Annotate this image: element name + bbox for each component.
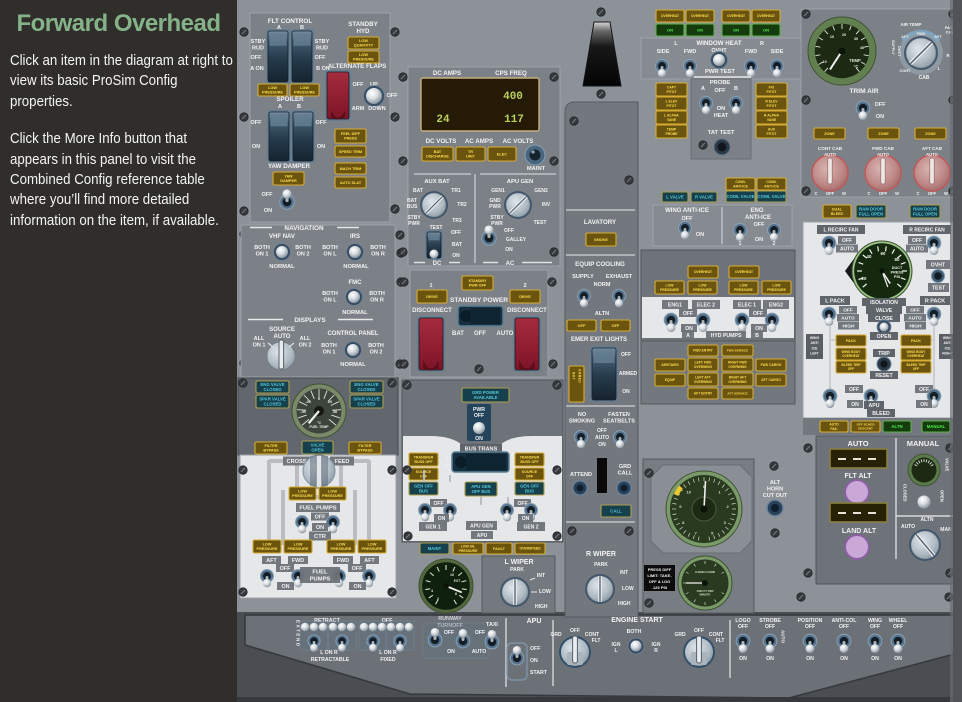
svg-text:OFF: OFF bbox=[738, 624, 748, 630]
svg-text:DUCT: DUCT bbox=[892, 266, 903, 270]
svg-text:SMOKE: SMOKE bbox=[594, 238, 608, 242]
svg-text:ON: ON bbox=[697, 27, 703, 32]
svg-text:PRESSURE: PRESSURE bbox=[693, 288, 712, 292]
svg-text:BYPASS: BYPASS bbox=[357, 449, 373, 453]
svg-text:FWD: FWD bbox=[917, 32, 926, 36]
svg-text:ON: ON bbox=[806, 656, 814, 662]
svg-text:ON: ON bbox=[876, 114, 884, 120]
svg-text:NAVIGATION: NAVIGATION bbox=[284, 225, 324, 232]
svg-text:CROSS: CROSS bbox=[287, 459, 307, 465]
svg-text:OFF: OFF bbox=[387, 93, 399, 99]
svg-text:VALVE: VALVE bbox=[876, 308, 893, 314]
svg-text:PUMPS: PUMPS bbox=[310, 577, 331, 583]
svg-text:A: A bbox=[701, 86, 705, 92]
svg-text:BLEED: BLEED bbox=[872, 411, 890, 417]
svg-text:FUEL PUMPS: FUEL PUMPS bbox=[299, 506, 336, 512]
svg-text:GRD: GRD bbox=[619, 464, 631, 470]
svg-text:L WIPER: L WIPER bbox=[504, 559, 533, 566]
svg-text:CALL: CALL bbox=[618, 471, 633, 477]
svg-text:RUNWAY: RUNWAY bbox=[438, 616, 462, 622]
svg-text:SOURCE: SOURCE bbox=[522, 470, 538, 474]
svg-text:OFF: OFF bbox=[315, 514, 326, 520]
svg-text:AFT: AFT bbox=[364, 558, 375, 564]
svg-text:40: 40 bbox=[333, 409, 338, 414]
svg-text:ON: ON bbox=[317, 144, 325, 150]
svg-text:ON: ON bbox=[667, 27, 673, 32]
svg-text:-10: -10 bbox=[821, 60, 827, 64]
svg-text:ALL: ALL bbox=[300, 336, 311, 342]
svg-text:LEFT: LEFT bbox=[810, 352, 819, 356]
svg-text:DISCHARGE: DISCHARGE bbox=[426, 155, 449, 159]
svg-text:PARK: PARK bbox=[594, 562, 608, 568]
svg-text:PRESSURE: PRESSURE bbox=[322, 494, 343, 498]
svg-text:AUTO: AUTO bbox=[901, 524, 915, 530]
svg-text:BOTH: BOTH bbox=[368, 343, 384, 349]
svg-text:SUPPLY: SUPPLY bbox=[572, 274, 594, 280]
svg-text:ALTN: ALTN bbox=[891, 424, 902, 429]
svg-text:TRANSFER: TRANSFER bbox=[414, 456, 434, 460]
svg-text:GEN2: GEN2 bbox=[534, 188, 548, 194]
svg-text:HORN: HORN bbox=[767, 487, 783, 493]
svg-text:ON: ON bbox=[475, 436, 483, 442]
svg-text:VALVE: VALVE bbox=[945, 458, 950, 472]
svg-text:AUTO: AUTO bbox=[497, 331, 514, 337]
svg-text:APU: APU bbox=[869, 403, 880, 409]
svg-text:ON: ON bbox=[685, 326, 693, 332]
svg-text:VHF NAV: VHF NAV bbox=[269, 234, 295, 240]
svg-text:HIGH: HIGH bbox=[843, 323, 856, 329]
svg-text:ON 1: ON 1 bbox=[256, 252, 269, 258]
svg-text:AC VOLTS: AC VOLTS bbox=[503, 138, 534, 145]
svg-text:OFF: OFF bbox=[451, 230, 461, 236]
svg-text:ISOLATION: ISOLATION bbox=[870, 300, 898, 306]
svg-text:NORM: NORM bbox=[594, 282, 611, 288]
svg-text:CONTROL PANEL: CONTROL PANEL bbox=[327, 331, 378, 337]
svg-text:ON: ON bbox=[871, 656, 879, 662]
svg-text:LAND ALT: LAND ALT bbox=[842, 528, 877, 535]
svg-text:LOW: LOW bbox=[263, 543, 272, 547]
svg-text:PWR: PWR bbox=[491, 221, 503, 227]
svg-text:EXHAUST: EXHAUST bbox=[606, 274, 633, 280]
svg-text:AUX BAT: AUX BAT bbox=[424, 179, 450, 185]
svg-text:STANDBY: STANDBY bbox=[468, 279, 487, 283]
svg-text:OFF: OFF bbox=[848, 367, 854, 371]
svg-text:PRESSURE: PRESSURE bbox=[660, 288, 679, 292]
svg-text:OFF: OFF bbox=[913, 367, 919, 371]
svg-text:ON: ON bbox=[281, 584, 289, 590]
svg-text:C: C bbox=[814, 191, 817, 196]
svg-text:-20: -20 bbox=[305, 399, 312, 404]
svg-text:OFF: OFF bbox=[805, 624, 815, 630]
svg-text:PRESSURE: PRESSURE bbox=[767, 288, 786, 292]
svg-text:PRESS: PRESS bbox=[344, 137, 357, 141]
svg-text:R: R bbox=[654, 648, 658, 654]
svg-text:AFT CARGO: AFT CARGO bbox=[761, 378, 781, 382]
svg-text:FULL OPEN: FULL OPEN bbox=[859, 212, 883, 217]
svg-text:ON: ON bbox=[530, 658, 538, 664]
svg-text:AFT: AFT bbox=[901, 35, 909, 39]
svg-text:O: O bbox=[512, 465, 515, 469]
svg-text:OFF: OFF bbox=[475, 630, 485, 636]
svg-text:B: B bbox=[300, 25, 304, 31]
svg-text:FLT CONTROL: FLT CONTROL bbox=[268, 18, 313, 25]
svg-text:MINUTE: MINUTE bbox=[700, 592, 711, 596]
svg-text:OFF: OFF bbox=[474, 331, 486, 337]
svg-text:ON: ON bbox=[264, 208, 272, 214]
svg-text:LOW: LOW bbox=[359, 39, 368, 43]
svg-text:GRD: GRD bbox=[550, 632, 562, 638]
svg-text:R VALVE: R VALVE bbox=[695, 195, 713, 200]
svg-text:DAMPER: DAMPER bbox=[280, 179, 297, 183]
svg-text:CONT CAB: CONT CAB bbox=[818, 146, 843, 151]
svg-text:RUD: RUD bbox=[252, 46, 264, 52]
svg-text:BUS: BUS bbox=[419, 489, 428, 494]
svg-text:400: 400 bbox=[503, 91, 523, 103]
svg-text:FEED: FEED bbox=[335, 459, 350, 465]
svg-text:10: 10 bbox=[686, 490, 691, 495]
svg-text:CAB: CAB bbox=[919, 75, 930, 81]
svg-text:PRESSURE: PRESSURE bbox=[362, 547, 383, 551]
svg-text:FWD: FWD bbox=[745, 49, 758, 55]
svg-text:OPEN: OPEN bbox=[940, 490, 945, 502]
svg-text:TAXI: TAXI bbox=[486, 622, 498, 628]
svg-text:LOW: LOW bbox=[294, 543, 303, 547]
svg-text:WINDOW HEAT: WINDOW HEAT bbox=[696, 40, 741, 47]
svg-text:AFT: AFT bbox=[934, 35, 942, 39]
svg-text:COWL VALVE: COWL VALVE bbox=[758, 194, 786, 199]
svg-text:20: 20 bbox=[862, 276, 867, 281]
svg-text:OFF: OFF bbox=[754, 222, 766, 228]
svg-text:ANTI-ICE: ANTI-ICE bbox=[733, 184, 748, 188]
svg-text:OFF: OFF bbox=[682, 216, 694, 222]
svg-text:CLOSED: CLOSED bbox=[358, 402, 376, 407]
svg-text:L ON R: L ON R bbox=[379, 650, 397, 656]
svg-text:2: 2 bbox=[437, 597, 439, 601]
svg-text:ANTI: ANTI bbox=[811, 341, 819, 345]
svg-text:BLEED: BLEED bbox=[831, 212, 844, 216]
svg-text:APU GEN: APU GEN bbox=[470, 523, 493, 529]
svg-text:YAW DAMPER: YAW DAMPER bbox=[268, 163, 311, 170]
svg-text:OVERWING: OVERWING bbox=[694, 365, 713, 369]
svg-text:OVERWING: OVERWING bbox=[728, 365, 747, 369]
svg-text:°C: °C bbox=[854, 64, 859, 69]
svg-text:LOW: LOW bbox=[328, 490, 337, 494]
svg-text:TR2: TR2 bbox=[457, 202, 467, 208]
svg-text:W: W bbox=[842, 191, 846, 196]
svg-text:OFF: OFF bbox=[352, 566, 363, 572]
svg-text:ON: ON bbox=[522, 516, 530, 522]
svg-text:PRESSURE: PRESSURE bbox=[288, 547, 309, 551]
svg-text:OFF & LDG: OFF & LDG bbox=[649, 579, 671, 584]
svg-text:MANUAL: MANUAL bbox=[927, 424, 946, 429]
svg-text:CONT: CONT bbox=[900, 69, 911, 73]
svg-text:AUTO: AUTO bbox=[781, 630, 786, 643]
svg-text:OFF: OFF bbox=[842, 238, 852, 244]
svg-text:WING: WING bbox=[810, 336, 820, 340]
svg-text:OVERHEAT: OVERHEAT bbox=[735, 270, 753, 274]
svg-text:DRIVE: DRIVE bbox=[426, 295, 438, 299]
svg-text:OFF: OFF bbox=[251, 55, 263, 61]
svg-text:ENGINE START: ENGINE START bbox=[611, 617, 663, 624]
svg-text:FWD: FWD bbox=[684, 49, 697, 55]
svg-text:OFF: OFF bbox=[753, 311, 763, 317]
svg-text:PRESSURE: PRESSURE bbox=[353, 58, 374, 62]
svg-text:PRESSURE: PRESSURE bbox=[292, 494, 313, 498]
svg-text:ON: ON bbox=[316, 525, 324, 531]
svg-text:8: 8 bbox=[455, 592, 457, 596]
svg-text:W: W bbox=[944, 191, 948, 196]
svg-text:ON: ON bbox=[452, 253, 460, 259]
svg-text:BUS: BUS bbox=[407, 204, 418, 210]
svg-text:BAT: BAT bbox=[413, 188, 423, 194]
svg-text:FMC: FMC bbox=[349, 280, 363, 286]
svg-text:PRESSURE: PRESSURE bbox=[294, 91, 315, 95]
svg-text:BAT: BAT bbox=[452, 331, 464, 337]
svg-text:ON L: ON L bbox=[323, 298, 337, 304]
svg-text:RESET: RESET bbox=[875, 373, 893, 379]
svg-text:PRESSURE: PRESSURE bbox=[257, 547, 278, 551]
svg-text:HIGH: HIGH bbox=[535, 604, 548, 610]
svg-text:OVERHEAT: OVERHEAT bbox=[842, 354, 860, 358]
svg-text:TRIP: TRIP bbox=[878, 351, 890, 357]
svg-text:CLOSED: CLOSED bbox=[358, 387, 376, 392]
svg-text:L ON R: L ON R bbox=[320, 650, 338, 656]
svg-text:30: 30 bbox=[854, 37, 858, 41]
svg-text:DRIVE: DRIVE bbox=[519, 295, 531, 299]
svg-text:MAINT: MAINT bbox=[527, 166, 546, 172]
svg-text:TEST: TEST bbox=[534, 220, 547, 226]
svg-text:LOW: LOW bbox=[298, 490, 307, 494]
svg-text:ON 2: ON 2 bbox=[299, 343, 312, 349]
svg-text:AUTO: AUTO bbox=[908, 315, 922, 321]
svg-text:AFT ENTRY: AFT ENTRY bbox=[694, 392, 713, 396]
svg-text:PROBE: PROBE bbox=[665, 132, 678, 136]
svg-text:OFF: OFF bbox=[578, 323, 587, 328]
svg-text:PITOT: PITOT bbox=[767, 104, 778, 108]
svg-text:BOTH: BOTH bbox=[322, 245, 338, 251]
svg-text:FUEL: FUEL bbox=[312, 570, 328, 576]
svg-text:OFF: OFF bbox=[910, 307, 920, 313]
svg-text:117: 117 bbox=[504, 114, 524, 126]
svg-text:CPS FREQ: CPS FREQ bbox=[495, 70, 527, 77]
svg-text:OVERHEAT: OVERHEAT bbox=[727, 14, 745, 18]
svg-text:BOTH: BOTH bbox=[627, 629, 642, 635]
svg-text:AC AMPS: AC AMPS bbox=[465, 138, 493, 145]
svg-text:OFF: OFF bbox=[444, 630, 454, 636]
svg-text:SIDE: SIDE bbox=[657, 49, 670, 55]
svg-text:ON: ON bbox=[739, 656, 747, 662]
svg-text:CLOSED: CLOSED bbox=[264, 402, 282, 407]
svg-text:OFF: OFF bbox=[683, 311, 693, 317]
svg-text:PWR TEST: PWR TEST bbox=[705, 69, 735, 75]
svg-text:AIRSTAIRS: AIRSTAIRS bbox=[661, 363, 679, 367]
svg-text:CABIN CLIMB: CABIN CLIMB bbox=[695, 570, 716, 574]
svg-text:OFF: OFF bbox=[919, 387, 929, 393]
svg-text:R: R bbox=[760, 41, 764, 47]
svg-text:2: 2 bbox=[773, 241, 776, 247]
svg-text:DISCONNECT: DISCONNECT bbox=[412, 308, 452, 314]
svg-text:FILTER: FILTER bbox=[358, 444, 371, 448]
svg-text:ON: ON bbox=[755, 326, 763, 332]
svg-text:PRESSURE: PRESSURE bbox=[734, 288, 753, 292]
svg-text:40: 40 bbox=[860, 46, 864, 50]
svg-text:FEEL DIFF: FEEL DIFF bbox=[341, 132, 361, 136]
svg-text:SEATBELTS: SEATBELTS bbox=[603, 419, 635, 425]
svg-text:BAT: BAT bbox=[434, 150, 442, 154]
svg-text:A ON: A ON bbox=[250, 66, 264, 72]
svg-text:OVERHEAT: OVERHEAT bbox=[694, 270, 712, 274]
svg-text:OFF: OFF bbox=[526, 475, 534, 479]
svg-text:LOW: LOW bbox=[368, 543, 377, 547]
svg-text:OFF: OFF bbox=[893, 624, 903, 630]
svg-text:TR3: TR3 bbox=[452, 218, 462, 224]
svg-text:L VALVE: L VALVE bbox=[666, 195, 684, 200]
svg-text:TEST: TEST bbox=[932, 285, 946, 291]
svg-text:FWD SERVICE: FWD SERVICE bbox=[727, 349, 748, 353]
svg-text:LOW: LOW bbox=[300, 86, 309, 90]
svg-text:OFF: OFF bbox=[843, 307, 853, 313]
svg-text:OFF: OFF bbox=[316, 120, 328, 126]
svg-text:PSI: PSI bbox=[894, 275, 900, 279]
svg-text:SPEED TRIM: SPEED TRIM bbox=[339, 150, 362, 154]
svg-text:PWR: PWR bbox=[489, 204, 501, 210]
svg-text:APU GEN: APU GEN bbox=[507, 179, 533, 185]
svg-text:OFF BUS: OFF BUS bbox=[472, 489, 491, 494]
svg-text:DUAL: DUAL bbox=[832, 208, 843, 212]
svg-text:VANE: VANE bbox=[667, 118, 677, 122]
svg-text:APU: APU bbox=[477, 533, 488, 539]
svg-text:OFF: OFF bbox=[715, 88, 727, 94]
svg-text:PRESS DIFF: PRESS DIFF bbox=[648, 567, 672, 572]
svg-text:ON 1: ON 1 bbox=[253, 343, 266, 349]
svg-text:OVERWING: OVERWING bbox=[728, 380, 747, 384]
svg-text:ALTN: ALTN bbox=[921, 517, 934, 523]
svg-text:OVERWING: OVERWING bbox=[694, 380, 713, 384]
svg-text:ZONE: ZONE bbox=[878, 132, 889, 136]
svg-text:AUTO: AUTO bbox=[472, 649, 487, 655]
svg-text:2: 2 bbox=[523, 283, 526, 289]
svg-text:OFF: OFF bbox=[570, 628, 580, 634]
svg-text:DESCENT: DESCENT bbox=[858, 427, 873, 431]
svg-text:ELEC 2: ELEC 2 bbox=[697, 302, 715, 308]
svg-text:AFT CAB: AFT CAB bbox=[922, 146, 943, 151]
svg-text:OFF: OFF bbox=[879, 191, 888, 196]
svg-text:PRESSURE: PRESSURE bbox=[331, 547, 352, 551]
svg-text:OFF: OFF bbox=[474, 413, 484, 419]
svg-text:ENG1: ENG1 bbox=[668, 302, 682, 308]
svg-text:PARK: PARK bbox=[510, 567, 524, 573]
svg-text:FWD ENTRY: FWD ENTRY bbox=[693, 349, 713, 353]
svg-text:ON 2: ON 2 bbox=[370, 350, 383, 356]
svg-text:L: L bbox=[938, 66, 941, 71]
svg-text:R RECIRC FAN: R RECIRC FAN bbox=[909, 227, 945, 233]
svg-text:OVERSPEED: OVERSPEED bbox=[519, 547, 541, 551]
svg-text:PITOT: PITOT bbox=[667, 90, 678, 94]
svg-text:40: 40 bbox=[867, 254, 872, 259]
svg-text:GRD: GRD bbox=[674, 632, 686, 638]
svg-text:TRIM AIR: TRIM AIR bbox=[849, 88, 878, 95]
svg-text:EGT: EGT bbox=[454, 579, 461, 583]
svg-text:INV: INV bbox=[542, 202, 551, 208]
svg-text:PACK: PACK bbox=[846, 339, 856, 343]
svg-text:ON: ON bbox=[766, 656, 774, 662]
svg-text:ON: ON bbox=[920, 402, 928, 408]
svg-text:FAULT: FAULT bbox=[493, 547, 506, 551]
svg-text:ENG2: ENG2 bbox=[769, 302, 783, 308]
svg-text:OFF: OFF bbox=[839, 624, 849, 630]
svg-text:BOTH: BOTH bbox=[295, 245, 311, 251]
svg-text:LAVATORY: LAVATORY bbox=[584, 219, 617, 226]
svg-text:HIGH: HIGH bbox=[910, 323, 923, 329]
svg-text:COWL VALVE: COWL VALVE bbox=[727, 194, 755, 199]
svg-text:AFT: AFT bbox=[266, 558, 277, 564]
svg-text:HIGH: HIGH bbox=[618, 601, 631, 607]
svg-text:QUANTITY: QUANTITY bbox=[354, 44, 374, 48]
svg-text:ON: ON bbox=[755, 237, 763, 243]
svg-text:LOW: LOW bbox=[337, 543, 346, 547]
svg-text:L PACK: L PACK bbox=[825, 298, 845, 304]
svg-text:ON 1: ON 1 bbox=[323, 350, 336, 356]
svg-text:FWD: FWD bbox=[337, 558, 349, 564]
svg-text:FAIL: FAIL bbox=[830, 427, 837, 431]
svg-text:EQUIP COOLING: EQUIP COOLING bbox=[575, 261, 625, 268]
svg-text:WING ANTI-ICE: WING ANTI-ICE bbox=[665, 208, 709, 214]
svg-text:AVAILABLE: AVAILABLE bbox=[474, 395, 498, 400]
svg-text:SIDE: SIDE bbox=[771, 49, 784, 55]
svg-text:LOW: LOW bbox=[268, 86, 277, 90]
svg-text:OVHT: OVHT bbox=[931, 262, 946, 268]
svg-text:BOTH: BOTH bbox=[254, 245, 270, 251]
svg-text:FLT: FLT bbox=[592, 638, 601, 644]
svg-text:GEN 2: GEN 2 bbox=[523, 524, 538, 530]
svg-text:ON: ON bbox=[505, 247, 513, 253]
svg-text:APU: APU bbox=[527, 618, 542, 625]
svg-text:ON: ON bbox=[252, 144, 260, 150]
svg-text:ON R: ON R bbox=[371, 252, 385, 258]
svg-text:OFF: OFF bbox=[875, 102, 887, 108]
svg-text:OFF: OFF bbox=[612, 323, 621, 328]
svg-text:AUTO: AUTO bbox=[840, 246, 854, 252]
svg-text:1: 1 bbox=[739, 241, 742, 247]
svg-text:DOWN: DOWN bbox=[368, 106, 385, 112]
svg-text:OVERHEAT: OVERHEAT bbox=[691, 14, 709, 18]
svg-text:ON: ON bbox=[763, 27, 769, 32]
svg-text:TR: TR bbox=[468, 150, 473, 154]
svg-text:ON: ON bbox=[733, 27, 739, 32]
svg-text:OFF: OFF bbox=[912, 238, 922, 244]
svg-text:STANDBY POWER: STANDBY POWER bbox=[450, 297, 508, 304]
svg-text:DC AMPS: DC AMPS bbox=[433, 70, 461, 77]
svg-text:ON: ON bbox=[353, 584, 361, 590]
svg-text:GEN1: GEN1 bbox=[491, 188, 505, 194]
svg-text:FIXED: FIXED bbox=[380, 657, 396, 663]
svg-text:LIMIT: TAKE-: LIMIT: TAKE- bbox=[647, 573, 672, 578]
svg-text:ICE: ICE bbox=[812, 346, 818, 350]
svg-text:AUTO: AUTO bbox=[847, 439, 868, 448]
svg-text:BOTH: BOTH bbox=[321, 343, 337, 349]
svg-text:UNIT: UNIT bbox=[466, 155, 476, 159]
svg-text:ZONE: ZONE bbox=[824, 132, 835, 136]
svg-text:10: 10 bbox=[830, 35, 834, 39]
svg-text:80: 80 bbox=[895, 257, 900, 262]
svg-text:AUTO: AUTO bbox=[926, 152, 939, 157]
svg-text:A: A bbox=[278, 104, 282, 110]
svg-text:DISCONNECT: DISCONNECT bbox=[507, 308, 547, 314]
svg-text:GALLEY: GALLEY bbox=[506, 237, 527, 243]
svg-text:ON: ON bbox=[840, 656, 848, 662]
svg-text:AUTO: AUTO bbox=[841, 315, 855, 321]
svg-text:AUTO: AUTO bbox=[824, 152, 837, 157]
